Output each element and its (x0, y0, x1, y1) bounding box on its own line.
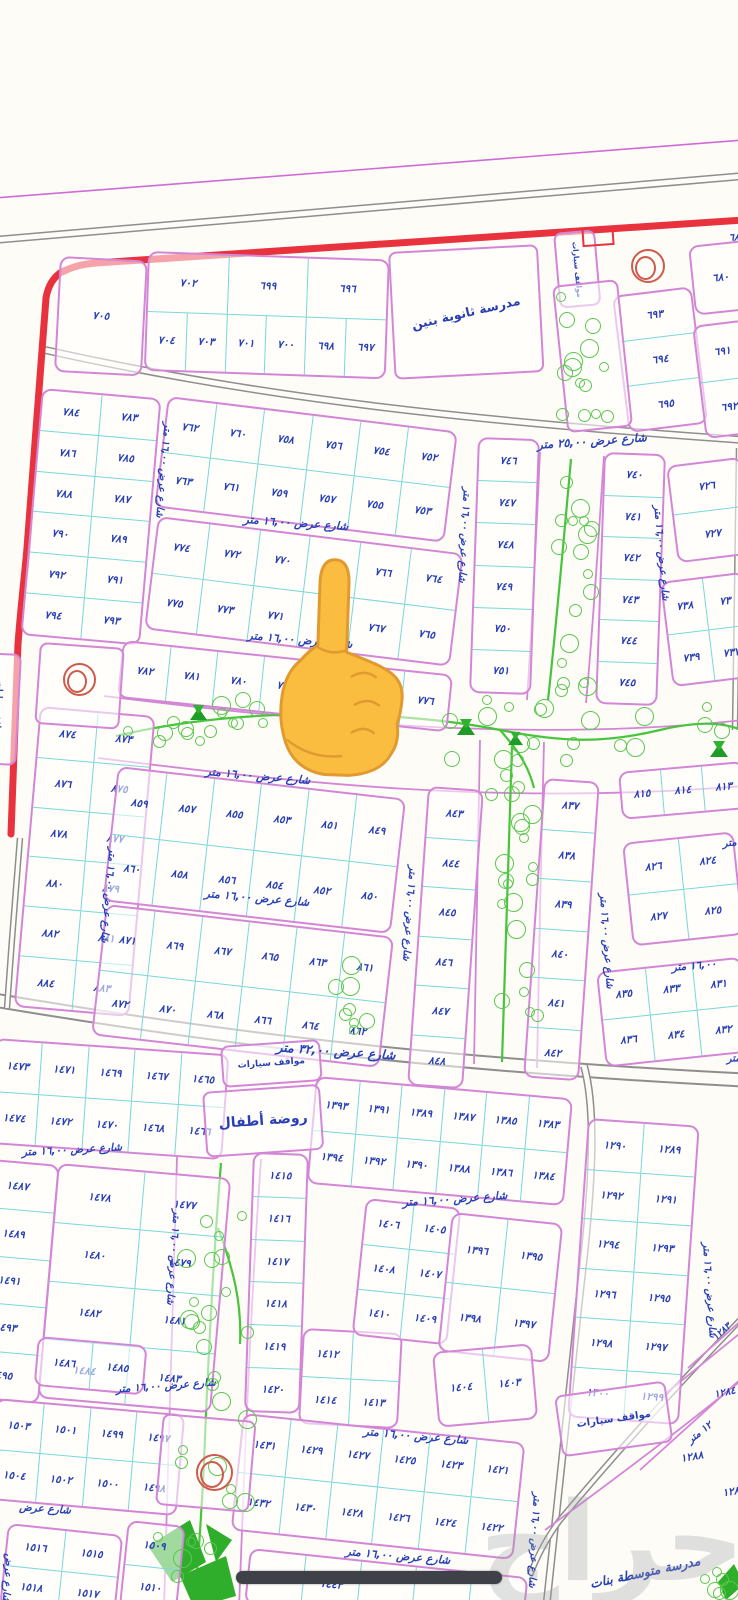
plot-cell: ٧٧٥ (146, 573, 202, 633)
tree-icon (189, 1297, 199, 1307)
tree-icon (519, 833, 529, 843)
plot-row: ٧٤٥ (597, 660, 656, 703)
playground-glyph (190, 704, 207, 721)
plot-cell: ٧٥٨ (258, 410, 312, 469)
plot-cell: ٧٥٦ (306, 416, 360, 475)
playground-icon (457, 718, 475, 740)
plot-label: مدرسة ثانوية بنين (410, 292, 522, 332)
plot-cell: ١٤٧٢ (35, 1095, 85, 1149)
plot-row: ٦٩٥ (625, 377, 706, 431)
street-label: ١٦,٠٠ متر (726, 1051, 738, 1065)
roundabout-icon (63, 663, 96, 696)
plot-cell: ١٤٢٤ (418, 1492, 470, 1553)
plot-cell: ١٥٠٤ (0, 1449, 39, 1501)
tree-icon (511, 754, 524, 767)
plot-cell: ١٤١٥ (253, 1154, 306, 1198)
tree-icon (385, 738, 395, 748)
roundabout-icon (196, 1454, 233, 1491)
plot-cell: ١٣٩٨ (440, 1282, 500, 1355)
plot-block-705: ٧٠٥ (54, 256, 148, 376)
playground-icon (190, 704, 207, 725)
plot-cell: ٨٤٩ (349, 795, 404, 865)
plot-row: ٧٥١ (471, 649, 530, 693)
tree-icon (559, 312, 575, 328)
tree-icon (579, 379, 592, 392)
video-progress-bar[interactable] (236, 1571, 502, 1584)
plot-cell: ٦٩٢ (701, 377, 738, 437)
plot-block-824-827: ٨٢٦٨٢٤٨٢٧٨٢٥ (622, 831, 738, 946)
street-label: ١٢ متر (686, 1420, 715, 1446)
tree-icon (504, 786, 520, 802)
plot-cell: ٨٥٤ (246, 850, 301, 920)
plot-block-1395-1398: ١٣٩٦١٣٩٥١٣٩٨١٣٩٧ (437, 1212, 563, 1363)
plot-cell: ٧٦٠ (210, 404, 264, 463)
tree-icon (217, 708, 227, 718)
tree-icon (204, 1252, 220, 1268)
plot-cell: ١٤٩١ (0, 1255, 49, 1308)
plot-cell: ١٣٨٩ (397, 1085, 444, 1140)
tree-icon (500, 769, 513, 782)
plot-cell: ١٤٣٠ (278, 1477, 330, 1538)
tree-icon (231, 717, 244, 730)
tree-icon (583, 569, 593, 579)
plot-cell: ٦٩٧ (344, 318, 386, 377)
plot-row: ٧٢٦ (668, 459, 738, 514)
plot-row: ١٤٩١ (0, 1254, 49, 1308)
plot-block-696-704: ٧٠٢٦٩٩٦٩٦٧٠٤٧٠٣٧٠١٧٠٠٦٩٨٦٩٧ (144, 251, 390, 379)
plot-row: ٨٤٢ (525, 1026, 580, 1079)
plot-cell: ٦٩٨ (304, 317, 346, 376)
plot-cell: ١٤٠٤ (434, 1350, 488, 1426)
plot-cell: ١٤٧٨ (55, 1165, 144, 1229)
plot-cell: ٨٥٣ (254, 784, 309, 854)
plot-row: ٧٤٦ (478, 439, 537, 482)
plot-cell: ٧٧٢ (203, 524, 260, 584)
plot-cell: ٨٥٢ (294, 856, 349, 926)
plot-cell: ٧٥٠ (473, 608, 532, 651)
plot-cell: ١٢٩٤ (580, 1219, 637, 1271)
plot-cell: ١٢٩٣ (633, 1223, 691, 1275)
roundabout-icon (631, 249, 665, 283)
plot-cell: ١٤٨٩ (0, 1207, 53, 1260)
plot-row: ١٤٨٩ (0, 1206, 53, 1260)
tree-icon (614, 739, 627, 752)
plot-cell: ٨٢٥ (683, 884, 738, 939)
plot-cell: ٨٦٥ (242, 922, 297, 991)
roundabout-inner-circle (67, 670, 87, 693)
tree-icon (511, 813, 530, 832)
plot-row: ١٢٩٢١٢٩١ (583, 1169, 694, 1226)
plot-cell: ٨٣٩ (536, 879, 591, 931)
roundabout-inner-circle (635, 256, 656, 280)
plot-number-1284: ١٢٨٤ (713, 1385, 736, 1400)
tree-icon (556, 292, 566, 302)
plot-row: ١٤٠٤١٤٠٣ (434, 1345, 536, 1425)
tree-icon (193, 1321, 206, 1334)
plot-cell: ١٥٠٠ (81, 1458, 132, 1510)
plot-cell: ٧٤٢ (602, 537, 661, 579)
tree-icon (188, 1533, 204, 1549)
tree-icon (503, 879, 513, 889)
plot-cell: ٨٥٠ (341, 861, 396, 931)
plot-cell: ٧٨٧ (91, 477, 153, 522)
plot-row: ٧٠٤٧٠٣٧٠١٧٠٠٦٩٨٦٩٧ (146, 311, 386, 378)
plot-cell: ٧٦٧ (347, 598, 404, 658)
plot-label: مواقف سيارات (576, 1408, 652, 1429)
plot-block-1412-1414: ١٤١٢١٤١٤١٤١٣ (298, 1328, 403, 1429)
plot-label: روضة أطفال (218, 1110, 308, 1132)
plot-cell: ٨٣٧ (542, 780, 597, 832)
plot-row: ٧٣٨٧٣ (662, 574, 738, 634)
plot-cell: ٨٣٢ (697, 1005, 738, 1055)
plot-cell: ١٤٢٨ (325, 1482, 377, 1543)
plot-cell: ٧٤٠ (605, 454, 664, 496)
plot-cell: ١٤٧١ (39, 1043, 89, 1097)
plot-cell: ٧٠٣ (185, 313, 227, 372)
tree-icon (442, 713, 458, 729)
plot-block-1515-1518: ١٥١٦١٥١٥١٥١٨١٥١٧ (0, 1523, 123, 1600)
plot-row: ١٣٩٦١٣٩٥ (447, 1214, 561, 1292)
plot-cell: ٦٩٦ (306, 259, 388, 319)
plot-row: ٧٣٩٧٣٧ (668, 624, 738, 685)
tree-icon (555, 514, 568, 527)
tree-icon (585, 318, 601, 334)
plot-row: ٧٤٩ (474, 565, 533, 609)
plot-cell: ١٤١٩ (247, 1325, 300, 1369)
plot-cell: ١٤٢٠ (246, 1368, 299, 1412)
tree-icon (178, 1445, 188, 1455)
tree-icon (560, 754, 573, 767)
tree-icon (204, 1542, 217, 1555)
tree-icon (564, 352, 583, 371)
plot-row: ٨٤٥ (420, 886, 475, 939)
playground-icon (710, 740, 728, 762)
plot-map: ٧٠٥٧٠٢٦٩٩٦٩٦٧٠٤٧٠٣٧٠١٧٠٠٦٩٨٦٩٧٦٨٠٦٩٣٦٩٤٦… (0, 0, 738, 1600)
tree-icon (204, 725, 217, 738)
playground-glyph (508, 731, 523, 746)
plot-cell: ٦٩٩ (227, 256, 309, 316)
plot-block-1403-1404: ١٤٠٤١٤٠٣ (432, 1343, 538, 1427)
plot-row: ١٢٩٨١٢٩٧ (573, 1317, 684, 1374)
plot-row: ١٥١٠ (121, 1563, 179, 1600)
plot-cell: ٧٤٨ (476, 523, 535, 566)
plot-cell: ٨٨٠ (25, 857, 85, 910)
plot-row: ١٤١٧ (250, 1239, 303, 1284)
plot-parking-left: مواقف سيارات (0, 652, 22, 766)
plot-cell: ٧٤٩ (474, 566, 533, 609)
plot-cell: ١٤١٣ (348, 1379, 399, 1427)
tree-icon (581, 711, 600, 730)
plot-row: ٦٩٢ (701, 376, 738, 437)
street-label: شارع عرض ١٦,٠٠ متر (456, 487, 472, 583)
tree-icon (519, 987, 529, 997)
plot-cell: ٨٣٦ (603, 1015, 654, 1065)
plot-cell: ٨٤٢ (525, 1027, 580, 1079)
plot-row: ٨٤٧ (413, 985, 468, 1038)
plot-cell: ١٥٠٣ (0, 1400, 43, 1452)
plot-cell: ٨٨٤ (16, 956, 76, 1009)
tree-icon (478, 707, 497, 726)
plot-cell: ١٤١٢ (303, 1330, 353, 1378)
plot-cell: ٧٣٩ (669, 630, 714, 685)
plot-row: ٨٤٠ (532, 927, 587, 980)
plot-cell: ٧٥٢ (401, 427, 455, 486)
plot-cell: ٧٠١ (224, 314, 266, 373)
plot-cell: ٨٧٦ (33, 758, 93, 811)
plot-cell: ١٥١٠ (121, 1564, 179, 1600)
tree-icon (238, 1410, 257, 1429)
plot-cell: ١٥١٥ (61, 1531, 121, 1576)
plot-row: ٨٢٧٨٢٥ (629, 883, 738, 945)
plot-row: ٧٤٨ (476, 522, 535, 566)
plot-cell: ٧٦٦ (354, 543, 411, 603)
plot-cell: ٧٣٧ (708, 625, 738, 680)
tree-icon (485, 788, 498, 801)
plot-cell: ٨١٣ (701, 763, 738, 810)
plot-cell: ١٣٩٥ (500, 1220, 561, 1293)
plot-row: ١٤١٨ (249, 1281, 302, 1326)
plot-row: ١٤٨٧ (0, 1160, 58, 1213)
plot-row: ١٢٩٦١٢٩٥ (576, 1267, 687, 1324)
tree-icon (196, 1339, 212, 1355)
tree-icon (635, 707, 654, 726)
plot-cell: ٧٥٥ (347, 476, 401, 535)
tree-icon (571, 499, 590, 518)
roundabout-inner-circle (200, 1461, 224, 1488)
plot-row: ٧٤٠ (605, 454, 664, 496)
plot-cell: ١٥٠٢ (35, 1453, 86, 1505)
plot-cell: ٨٥٨ (151, 840, 206, 910)
plot-row: ١٤١٤١٤١٣ (300, 1376, 398, 1427)
tree-icon (534, 703, 547, 716)
tree-icon (528, 862, 538, 872)
plot-cell: ٧٠٠ (264, 316, 306, 375)
plot-cell: ١٤٧٧ (139, 1173, 229, 1237)
plot-cell: ١٣٩٠ (392, 1138, 439, 1193)
plot-row: ٦٨٠ (690, 242, 738, 313)
plot-cell: ٨٤٧ (413, 986, 468, 1038)
playground-glyph (710, 740, 728, 758)
plot-cell: ٧٩١ (83, 558, 145, 603)
tree-icon (173, 1549, 192, 1568)
plot-row: ٨١٥٨١٤٨١٣ (620, 763, 738, 817)
tree-icon (444, 751, 460, 767)
tree-icon (697, 717, 713, 733)
tree-icon (568, 516, 578, 526)
plot-cell: ١٣٩٢ (350, 1134, 397, 1189)
tree-icon (258, 718, 268, 728)
plot-cell: ٧٨٢ (119, 642, 170, 701)
plot-cell: ٦٩١ (694, 322, 738, 382)
plot-block-1289-1300: ١٢٩٠١٢٨٩١٢٩٢١٢٩١١٢٩٤١٢٩٣١٢٩٦١٢٩٥١٢٩٨١٢٩٧… (567, 1118, 700, 1425)
plot-cell: ٧٩٢ (26, 553, 87, 598)
plot-cell: ٨٦٩ (147, 912, 202, 981)
plot-block-737-739: ٧٣٨٧٣٧٣٩٧٣٧ (660, 572, 738, 687)
plot-row: ٧٥٠ (473, 607, 532, 651)
plot-cell: ١٢٩٢ (583, 1170, 640, 1222)
tree-icon (249, 701, 265, 717)
plot-cell: ٨٢٧ (629, 889, 687, 944)
plot-cell: ٧٦٨ (303, 537, 360, 597)
plot-cell: ٦٩٥ (625, 378, 706, 431)
haraj-watermark: حراج (480, 1478, 738, 1600)
tree-icon (507, 920, 526, 939)
plot-cell: ٨٥٦ (199, 845, 254, 915)
plot-cell: ٨٥٩ (112, 768, 166, 838)
plot-cell: ١٥٠١ (39, 1404, 90, 1456)
tree-icon (601, 410, 614, 423)
playground-glyph (457, 718, 475, 736)
plot-row: ١٤١٩ (247, 1324, 300, 1369)
plot-cell: ٦٨٠ (690, 242, 738, 313)
plot-row: ٦٩١ (694, 322, 738, 382)
tree-icon (504, 893, 523, 912)
plot-cell: ٧٠٢ (148, 253, 229, 313)
plot-cell: ٨٥١ (301, 790, 356, 860)
plot-row: ٧٤٢ (602, 536, 661, 579)
plot-cell: ٨٦٨ (187, 981, 242, 1050)
tree-icon (557, 677, 570, 690)
plot-cell: ١٤١٨ (249, 1282, 302, 1326)
plot-school-boys: مدرسة ثانوية بنين (388, 244, 544, 380)
plot-cell: ٧٥٣ (395, 482, 449, 541)
plot-cell: ٨٤٥ (420, 887, 475, 939)
plot-cell: ٧٤٣ (600, 578, 659, 620)
plot-cell: ١٤١٠ (354, 1290, 404, 1339)
plot-number-1288: ١٢٨٨ (680, 1449, 704, 1465)
plot-cell: ٧٤٥ (597, 661, 656, 703)
plot-row: ٧٩٤٧٩٣ (23, 593, 142, 644)
plot-cell-empty (350, 1333, 401, 1381)
plot-cell: ٧٨١ (165, 647, 217, 706)
plot-cell: ٧٧٩ (258, 657, 310, 716)
plot-cell: ١٣٨٧ (439, 1089, 486, 1144)
plot-row: ١٢٩٤١٢٩٣ (580, 1218, 691, 1275)
plot-cell: ١٣٨٨ (435, 1141, 482, 1196)
plot-row: ٧٤٧ (477, 480, 536, 524)
playground-icon (508, 731, 523, 750)
plot-cell: ١٣٨٤ (519, 1149, 566, 1204)
plot-cell: ١٢٩٠ (586, 1120, 643, 1172)
plot-cell: ٨٢٦ (624, 839, 682, 894)
plot-cell: ٧٩٤ (23, 594, 84, 639)
tree-icon (551, 539, 567, 555)
plot-cell: ٨٥٥ (206, 779, 261, 849)
plot-row: ٨٤٨ (409, 1034, 464, 1087)
plot-cell: ١٤٠٣ (481, 1345, 536, 1421)
plot-block-726-727: ٧٢٦٧٢٧ (666, 457, 738, 564)
plot-cell: ١٤٨٧ (0, 1160, 58, 1213)
plot-cell: ١٤٦٩ (85, 1047, 135, 1101)
tree-icon (482, 695, 492, 705)
plot-cell: ٧٤٤ (599, 620, 658, 662)
tree-icon (583, 584, 599, 600)
plot-cell: ١٣٩٦ (447, 1214, 507, 1287)
plot-cell: ٧٤٧ (477, 481, 536, 524)
street-label: شارع عرض ١٦,٠٠ متر (700, 1242, 718, 1338)
plot-cell: ٧٥٤ (353, 422, 407, 481)
tree-icon (569, 604, 582, 617)
gate-marker (581, 226, 614, 247)
tree-icon (201, 1305, 217, 1321)
plot-row: ٨٣٧ (542, 780, 597, 832)
plot-cell: ٧٣ (701, 574, 738, 629)
plot-row: ٨٣٨ (539, 829, 594, 882)
plot-cell: ١٤١٧ (250, 1240, 303, 1284)
plot-cell: ١٢٩١ (636, 1173, 694, 1225)
plot-cell: ٨١٥ (620, 770, 664, 817)
tree-icon (236, 1493, 255, 1512)
plot-cell: ٨٤٠ (532, 928, 587, 980)
plot-row: ١٤١٦ (252, 1196, 305, 1241)
plot-cell: ١٢٩٨ (573, 1318, 630, 1370)
plot-block-680: ٦٨٠ (688, 240, 738, 316)
plot-cell: ١٣٩١ (355, 1082, 402, 1137)
plot-cell: ١٤٨٢ (45, 1281, 134, 1345)
tree-icon (504, 702, 514, 712)
plot-cell: ٧٨٥ (94, 436, 156, 481)
plot-cell: ٨٧٠ (140, 976, 195, 1045)
plot-cell: ٧٦٥ (398, 604, 455, 664)
plot-cell: ٨٦٧ (195, 917, 250, 986)
plot-cell: ٧٥١ (471, 650, 530, 693)
plot-block-843-848: ٨٤٣٨٤٤٨٤٥٨٤٦٨٤٧٨٤٨ (407, 786, 484, 1089)
tree-icon (237, 1211, 247, 1221)
plot-row: ٨٤٣ (426, 788, 481, 840)
plot-cell: ٨٤٤ (423, 838, 478, 890)
plot-cell: ٧٨٨ (33, 472, 94, 517)
plot-cell: ٧٨٤ (40, 390, 101, 435)
plot-block-746-751: ٧٤٦٧٤٧٧٤٨٧٤٩٧٥٠٧٥١ (469, 437, 540, 695)
plot-cell: ٧٨٩ (87, 517, 149, 562)
tree-icon (714, 723, 730, 739)
tree-icon (339, 1008, 352, 1021)
plot-cell: ١٤٧٤ (0, 1092, 39, 1146)
plot-cell: ٨٧٢ (93, 970, 147, 1038)
plot-row: ٨٤٦ (416, 935, 471, 988)
tree-icon (560, 476, 573, 489)
plot-label: مواقف سيارات (0, 681, 5, 737)
plot-block-813-815: ٨١٥٨١٤٨١٣ (618, 761, 738, 820)
plot-cell: ١٤٦٨ (128, 1101, 178, 1155)
tree-icon (578, 677, 597, 696)
plot-cell: ١٥١٦ (6, 1525, 65, 1570)
tree-icon (591, 409, 601, 419)
tree-icon (599, 362, 609, 372)
tree-icon (342, 956, 361, 975)
street-label: شارع عرض (19, 1501, 71, 1517)
plot-cell: ٧٢٦ (668, 459, 738, 514)
plot-cell: ١٢٩٧ (626, 1321, 684, 1373)
plot-cell: ١٣٨٣ (524, 1097, 571, 1152)
plot-kindergarten: روضة أطفال (202, 1084, 324, 1158)
tree-icon (208, 1371, 221, 1384)
plot-cell: ٨٧٨ (29, 807, 89, 860)
plot-row: ٧٠٥ (56, 258, 146, 374)
plot-cell: ١٢٨٩ (640, 1124, 698, 1176)
plot-cell: ٨٤٨ (409, 1035, 464, 1087)
plot-cell: ١٣٨٥ (482, 1093, 529, 1148)
plot-cell-empty (352, 667, 404, 726)
plot-row: ١٤١٠١٤٠٩ (354, 1289, 450, 1343)
plot-cell: ٧٧٣ (196, 579, 253, 639)
tree-icon (325, 750, 344, 769)
plot-row: ١٤٢٠ (246, 1367, 299, 1412)
tree-icon (578, 409, 591, 422)
plot-cell: ٧٧٤ (153, 518, 209, 578)
tree-icon (578, 525, 597, 544)
plot-cell: ١٤٠٨ (358, 1245, 408, 1294)
